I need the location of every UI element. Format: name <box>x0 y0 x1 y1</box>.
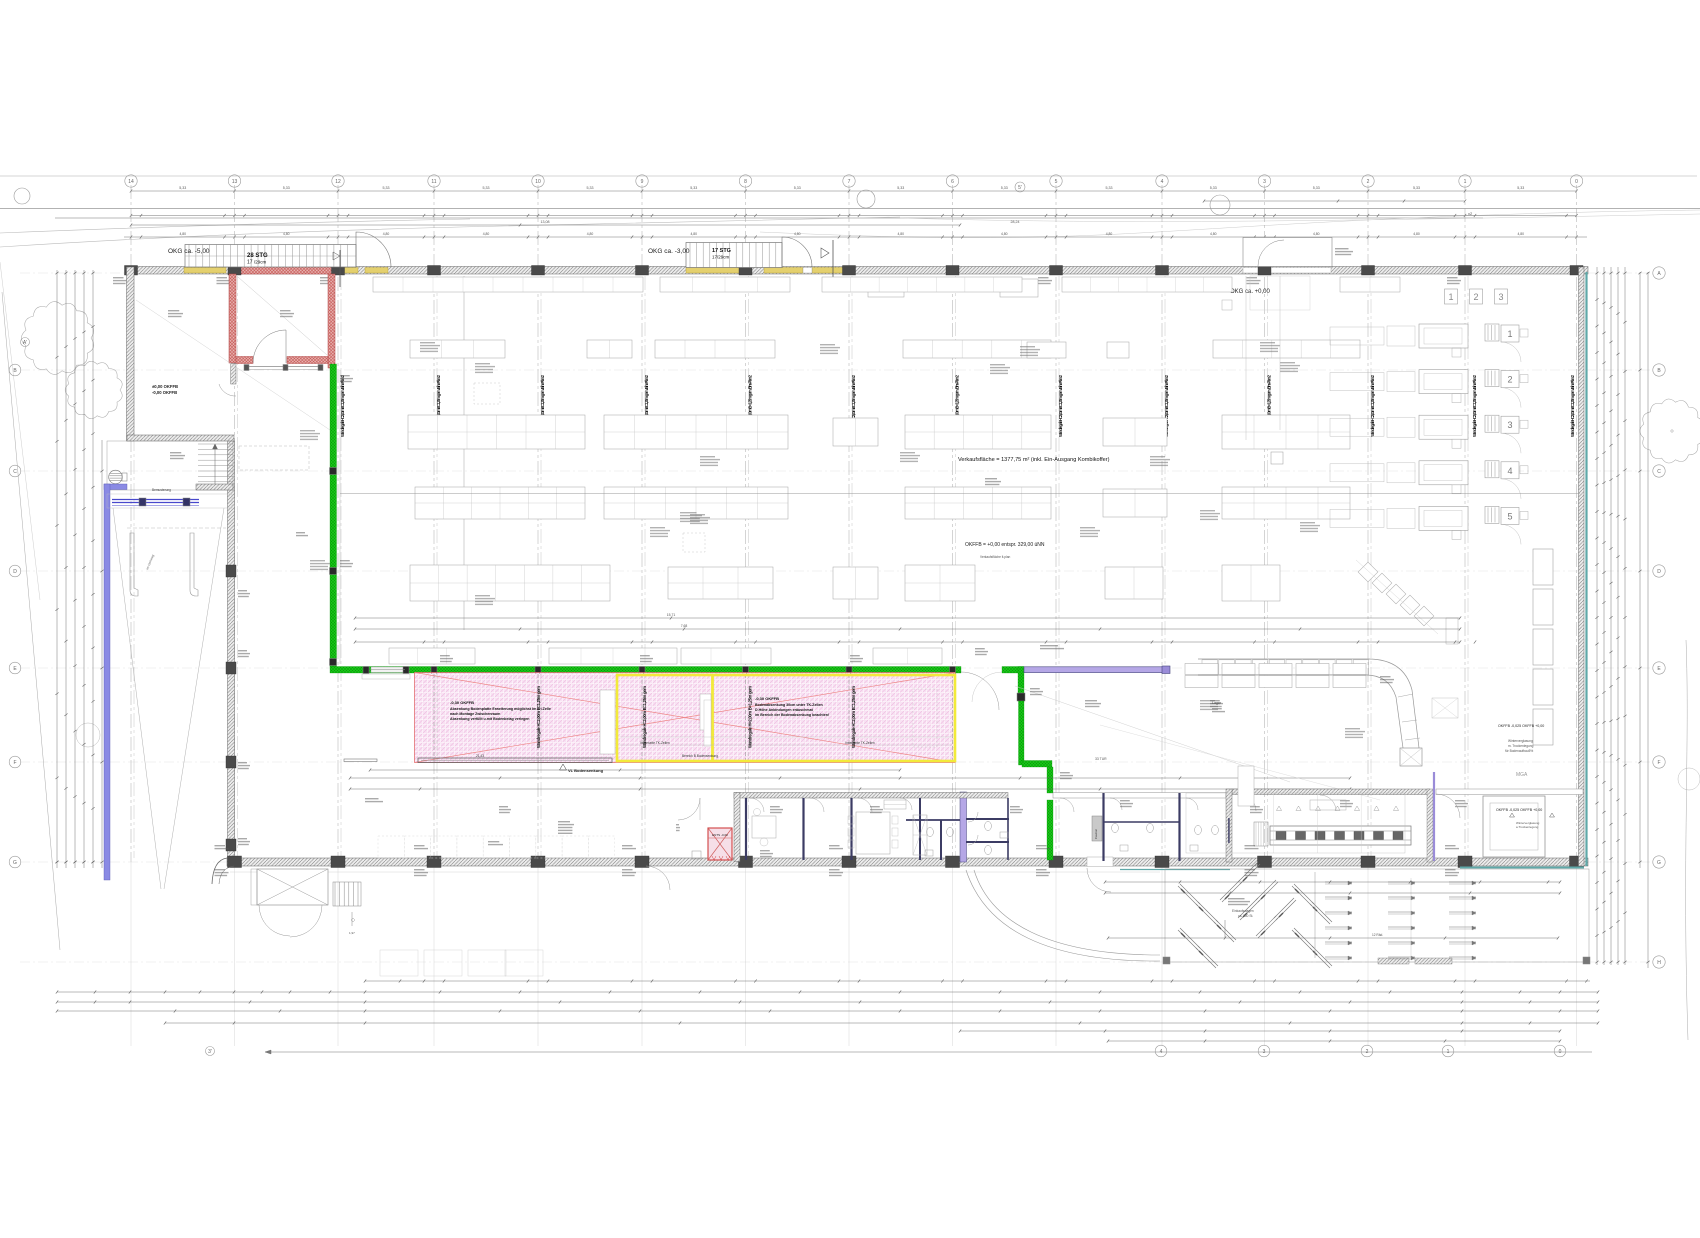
svg-text:VL Bodensenkung: VL Bodensenkung <box>568 768 604 773</box>
svg-text:nach Montage Zwischenraum: nach Montage Zwischenraum <box>450 712 500 716</box>
svg-text:OKG ca. -3,00: OKG ca. -3,00 <box>648 248 690 255</box>
svg-text:Bodenabsenkung 30cm unter TK-Z: Bodenabsenkung 30cm unter TK-Zellen <box>755 703 823 707</box>
svg-text:12 Räd.: 12 Räd. <box>1372 933 1383 937</box>
svg-text:5,33: 5,33 <box>1517 186 1524 190</box>
svg-text:im Gehweg: im Gehweg <box>145 554 155 571</box>
svg-text:4,80: 4,80 <box>1210 232 1217 236</box>
svg-text:5': 5' <box>1018 185 1022 191</box>
svg-text:4,80: 4,80 <box>1106 232 1113 236</box>
svg-text:5,33: 5,33 <box>897 186 904 190</box>
svg-text:5,33: 5,33 <box>587 186 594 190</box>
svg-text:5,33: 5,33 <box>283 186 290 190</box>
svg-text:2: 2 <box>1507 375 1512 385</box>
svg-text:4,80: 4,80 <box>179 232 186 236</box>
svg-text:4,80: 4,80 <box>690 232 697 236</box>
svg-text:Einkaufswagen: Einkaufswagen <box>1232 909 1254 913</box>
svg-text:33 TUR: 33 TUR <box>1095 757 1107 761</box>
svg-text:OKG ca. -5,00: OKG ca. -5,00 <box>168 248 210 255</box>
svg-text:14: 14 <box>128 179 134 185</box>
svg-text:5,33: 5,33 <box>1001 186 1008 190</box>
svg-text:D: D <box>13 569 17 575</box>
svg-text:7,68: 7,68 <box>681 624 688 628</box>
svg-text:G: G <box>13 860 17 866</box>
svg-text:G: G <box>1657 860 1661 866</box>
svg-text:Wandregale H=2,00m B=1,25m gem: Wandregale H=2,00m B=1,25m gem. Einr.-Pl… <box>1370 374 1375 437</box>
svg-text:ca. 150 St.: ca. 150 St. <box>1238 914 1253 918</box>
svg-text:Innenseite TK-Zellen: Innenseite TK-Zellen <box>845 741 875 745</box>
svg-text:17 STG: 17 STG <box>712 248 731 254</box>
svg-text:±0,00 OKFFB: ±0,00 OKFFB <box>152 384 178 389</box>
svg-text:Caution: Caution <box>1094 829 1098 840</box>
svg-text:-0,30 OKFFB: -0,30 OKFFB <box>450 700 474 705</box>
svg-text:Wandregale H=2,00m B=1,25m gem: Wandregale H=2,00m B=1,25m gem <box>642 686 647 748</box>
svg-text:MGA: MGA <box>1516 772 1528 778</box>
svg-text:5,33: 5,33 <box>1210 186 1217 190</box>
svg-text:12: 12 <box>335 179 341 185</box>
svg-text:1: 1 <box>1464 179 1467 185</box>
svg-text:28 STG: 28 STG <box>247 253 268 259</box>
svg-text:E: E <box>1657 666 1661 672</box>
svg-text:OKFFB -0,025 OKFFB +0,00: OKFFB -0,025 OKFFB +0,00 <box>1498 724 1544 728</box>
svg-text:13: 13 <box>232 179 238 185</box>
svg-text:m. Trockenlegung: m. Trockenlegung <box>1508 744 1534 748</box>
svg-text:für Bodenaufbau5%: für Bodenaufbau5% <box>1505 749 1533 753</box>
svg-text:Verkaufsfläche = 1377,75 m² (i: Verkaufsfläche = 1377,75 m² (inkl. Ein-A… <box>958 457 1110 463</box>
svg-text:4,80: 4,80 <box>483 232 490 236</box>
svg-text:F: F <box>13 760 16 766</box>
svg-text:Wandregale H=2,00m B=1,25m gem: Wandregale H=2,00m B=1,25m gem. Einr.-Pl… <box>1570 374 1575 437</box>
svg-text:5,33: 5,33 <box>179 186 186 190</box>
svg-text:ENTS -0,00: ENTS -0,00 <box>712 833 728 837</box>
svg-text:0: 0 <box>1575 179 1578 185</box>
svg-text:Absenkung verfüllt u.mit Boden: Absenkung verfüllt u.mit Bodenbelag verl… <box>450 717 529 721</box>
svg-text:Wandregale H=2,00m B=1,25m gem: Wandregale H=2,00m B=1,25m gem <box>536 686 541 748</box>
svg-text:8: 8 <box>744 179 747 185</box>
svg-text:Wandregale H=2,00m B=1,25m gem: Wandregale H=2,00m B=1,25m gem. Einr.-Pl… <box>1058 374 1063 437</box>
svg-text:13,08: 13,08 <box>541 220 550 224</box>
svg-text:Bemusterung: Bemusterung <box>152 488 171 492</box>
svg-text:21,43: 21,43 <box>476 754 484 758</box>
svg-text:-0,00 OKFFB: -0,00 OKFFB <box>152 390 177 395</box>
svg-text:5,33: 5,33 <box>1106 186 1113 190</box>
svg-text:5,33: 5,33 <box>383 186 390 190</box>
svg-text:E: E <box>13 666 17 672</box>
svg-text:5,33: 5,33 <box>483 186 490 190</box>
svg-text:2: 2 <box>1367 179 1370 185</box>
svg-text:-0,30 OKFFB: -0,30 OKFFB <box>755 696 779 701</box>
svg-text:4,80: 4,80 <box>1001 232 1008 236</box>
svg-text:4,80: 4,80 <box>283 232 290 236</box>
svg-text:1: 1 <box>1448 292 1453 302</box>
svg-text:OKG ca. +0,00: OKG ca. +0,00 <box>1230 289 1271 295</box>
svg-text:2: 2 <box>1366 1049 1369 1055</box>
svg-text:4,80: 4,80 <box>897 232 904 236</box>
svg-text:Bereich B Bodensenkung: Bereich B Bodensenkung <box>682 754 718 758</box>
svg-text:4,80: 4,80 <box>794 232 801 236</box>
svg-text:OKFFB = +0,00 entspr. 329,00 ü: OKFFB = +0,00 entspr. 329,00 üNN <box>965 542 1045 548</box>
svg-text:H: H <box>1657 960 1661 966</box>
svg-text:4,80: 4,80 <box>587 232 594 236</box>
svg-text:17: 17 <box>247 260 253 266</box>
svg-text:Verkaufsfläche lt.plan: Verkaufsfläche lt.plan <box>980 555 1011 559</box>
svg-text:10: 10 <box>535 179 541 185</box>
svg-text:6: 6 <box>951 179 954 185</box>
svg-text:Wandregale H=2,00m B=1,25m gem: Wandregale H=2,00m B=1,25m gem <box>748 686 753 748</box>
svg-text:/29cm: /29cm <box>254 260 267 265</box>
svg-text:9: 9 <box>641 179 644 185</box>
svg-text:4,80: 4,80 <box>383 232 390 236</box>
svg-text:0: 0 <box>1559 1049 1562 1055</box>
svg-text:Wandregale H=2,00m B=1,25m gem: Wandregale H=2,00m B=1,25m gem. Einr.-Pl… <box>340 374 345 437</box>
svg-text:3: 3 <box>1507 420 1512 430</box>
svg-text:Wandregale H=2,00m B=1,25m gem: Wandregale H=2,00m B=1,25m gem. Einr.-Pl… <box>1472 374 1477 437</box>
svg-text:17/29cm: 17/29cm <box>712 255 730 260</box>
svg-text:2: 2 <box>1473 292 1478 302</box>
svg-text:5: 5 <box>1055 179 1058 185</box>
svg-text:F: F <box>1657 760 1660 766</box>
svg-text:28,24: 28,24 <box>1011 220 1020 224</box>
svg-text:5,33: 5,33 <box>690 186 697 190</box>
svg-text:A': A' <box>23 340 27 346</box>
svg-text:4,80: 4,80 <box>1517 232 1524 236</box>
svg-text:Wandregale H=2,00m B=1,25m gem: Wandregale H=2,00m B=1,25m gem <box>851 686 856 748</box>
svg-text:4,80: 4,80 <box>1313 232 1320 236</box>
svg-text:4: 4 <box>1160 1049 1163 1055</box>
svg-text:1: 1 <box>1507 329 1512 339</box>
svg-text:3: 3 <box>1498 292 1503 302</box>
svg-text:B: B <box>13 368 17 374</box>
svg-text:1: 1 <box>1447 1049 1450 1055</box>
svg-text:im Bereich der Bodenabsenkung: im Bereich der Bodenabsenkung beachten! <box>755 713 829 717</box>
svg-text:5,33: 5,33 <box>1313 186 1320 190</box>
svg-text:Winterverglasung: Winterverglasung <box>1508 739 1533 743</box>
svg-text:7: 7 <box>848 179 851 185</box>
svg-text:D.Höhe Anbindungen eräuschmat: D.Höhe Anbindungen eräuschmat <box>755 708 814 712</box>
svg-text:x2: x2 <box>1468 211 1473 216</box>
svg-text:4: 4 <box>1507 466 1512 476</box>
svg-text:5,33: 5,33 <box>1413 186 1420 190</box>
svg-text:4: 4 <box>1161 179 1164 185</box>
svg-text:3': 3' <box>208 1049 212 1055</box>
svg-text:a.Trockenlegung: a.Trockenlegung <box>1516 825 1539 829</box>
svg-text:OKFFB -0,025 OKFFB +0,00: OKFFB -0,025 OKFFB +0,00 <box>1496 808 1542 812</box>
svg-text:15,71: 15,71 <box>667 613 676 617</box>
svg-text:11: 11 <box>431 179 436 185</box>
svg-text:3: 3 <box>1263 179 1266 185</box>
svg-text:3: 3 <box>1263 1049 1266 1055</box>
svg-text:5,33: 5,33 <box>794 186 801 190</box>
svg-text:D: D <box>1657 569 1661 575</box>
svg-text:1,97: 1,97 <box>349 931 355 935</box>
svg-text:C: C <box>1657 469 1661 475</box>
svg-text:A: A <box>1657 271 1661 277</box>
svg-text:4,80: 4,80 <box>1413 232 1420 236</box>
svg-text:B: B <box>1657 368 1661 374</box>
svg-text:C: C <box>13 469 17 475</box>
svg-text:5: 5 <box>1507 511 1512 521</box>
